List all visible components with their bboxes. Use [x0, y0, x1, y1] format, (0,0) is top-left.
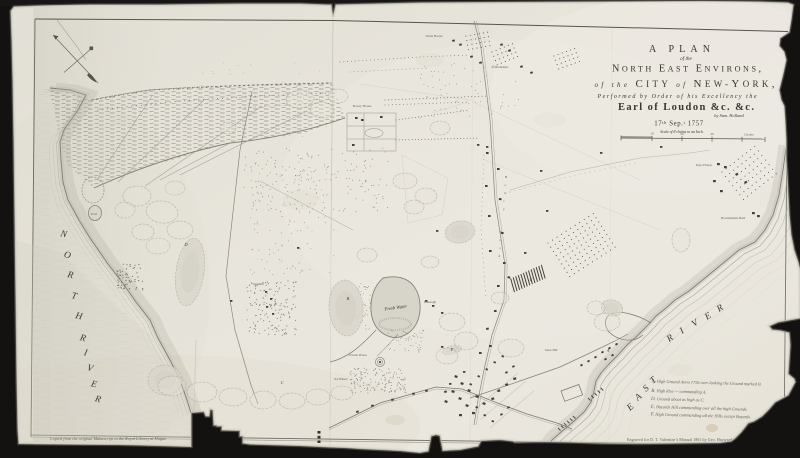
- svg-text:Copied from the original Manus: Copied from the original Manuscript in t…: [50, 436, 167, 441]
- svg-text:d: d: [499, 254, 501, 258]
- svg-text:20: 20: [680, 132, 684, 136]
- svg-text:NORTH EAST ENVIRONS,: NORTH EAST ENVIRONS,: [612, 64, 762, 75]
- svg-text:B: B: [347, 296, 350, 301]
- svg-text:A PLAN: A PLAN: [649, 44, 713, 55]
- svg-text:o: o: [505, 183, 507, 187]
- svg-text:Pot Bakers: Pot Bakers: [334, 377, 348, 381]
- svg-text:Engraved for D. T. Valentine’s: Engraved for D. T. Valentine’s Manual 18…: [627, 437, 732, 442]
- svg-text:F: F: [450, 347, 454, 352]
- svg-text:Powder House: Powder House: [349, 353, 367, 357]
- svg-text:Bowry House: Bowry House: [353, 104, 372, 108]
- svg-text:y: y: [503, 207, 505, 211]
- svg-text:Jones Hill: Jones Hill: [545, 348, 558, 352]
- svg-text:Horsmandens Bath: Horsmandens Bath: [721, 216, 746, 220]
- svg-text:C: C: [281, 380, 284, 385]
- svg-text:Chains: Chains: [744, 133, 754, 137]
- svg-text:Somerindyke: Somerindyke: [492, 65, 510, 69]
- svg-text:30: 30: [710, 132, 714, 136]
- svg-text:of the: of the: [680, 55, 692, 62]
- svg-text:Pond: Pond: [91, 212, 98, 216]
- svg-text:o: o: [500, 238, 502, 242]
- svg-text:Ranelagh: Ranelagh: [424, 300, 436, 304]
- svg-text:D: D: [183, 242, 187, 247]
- svg-text:17th Sep.t 1757: 17th Sep.t 1757: [654, 120, 703, 128]
- svg-text:Performed by Order of his Exce: Performed by Order of his Excellency the: [597, 93, 757, 100]
- svg-text:E: E: [529, 277, 533, 282]
- svg-text:Watts House: Watts House: [425, 34, 443, 38]
- svg-text:Kips House: Kips House: [696, 163, 712, 167]
- svg-text:A: A: [606, 348, 610, 353]
- svg-text:10: 10: [650, 132, 654, 136]
- svg-text:Windmill: Windmill: [252, 282, 264, 286]
- svg-text:by Sam. Holland: by Sam. Holland: [714, 113, 744, 118]
